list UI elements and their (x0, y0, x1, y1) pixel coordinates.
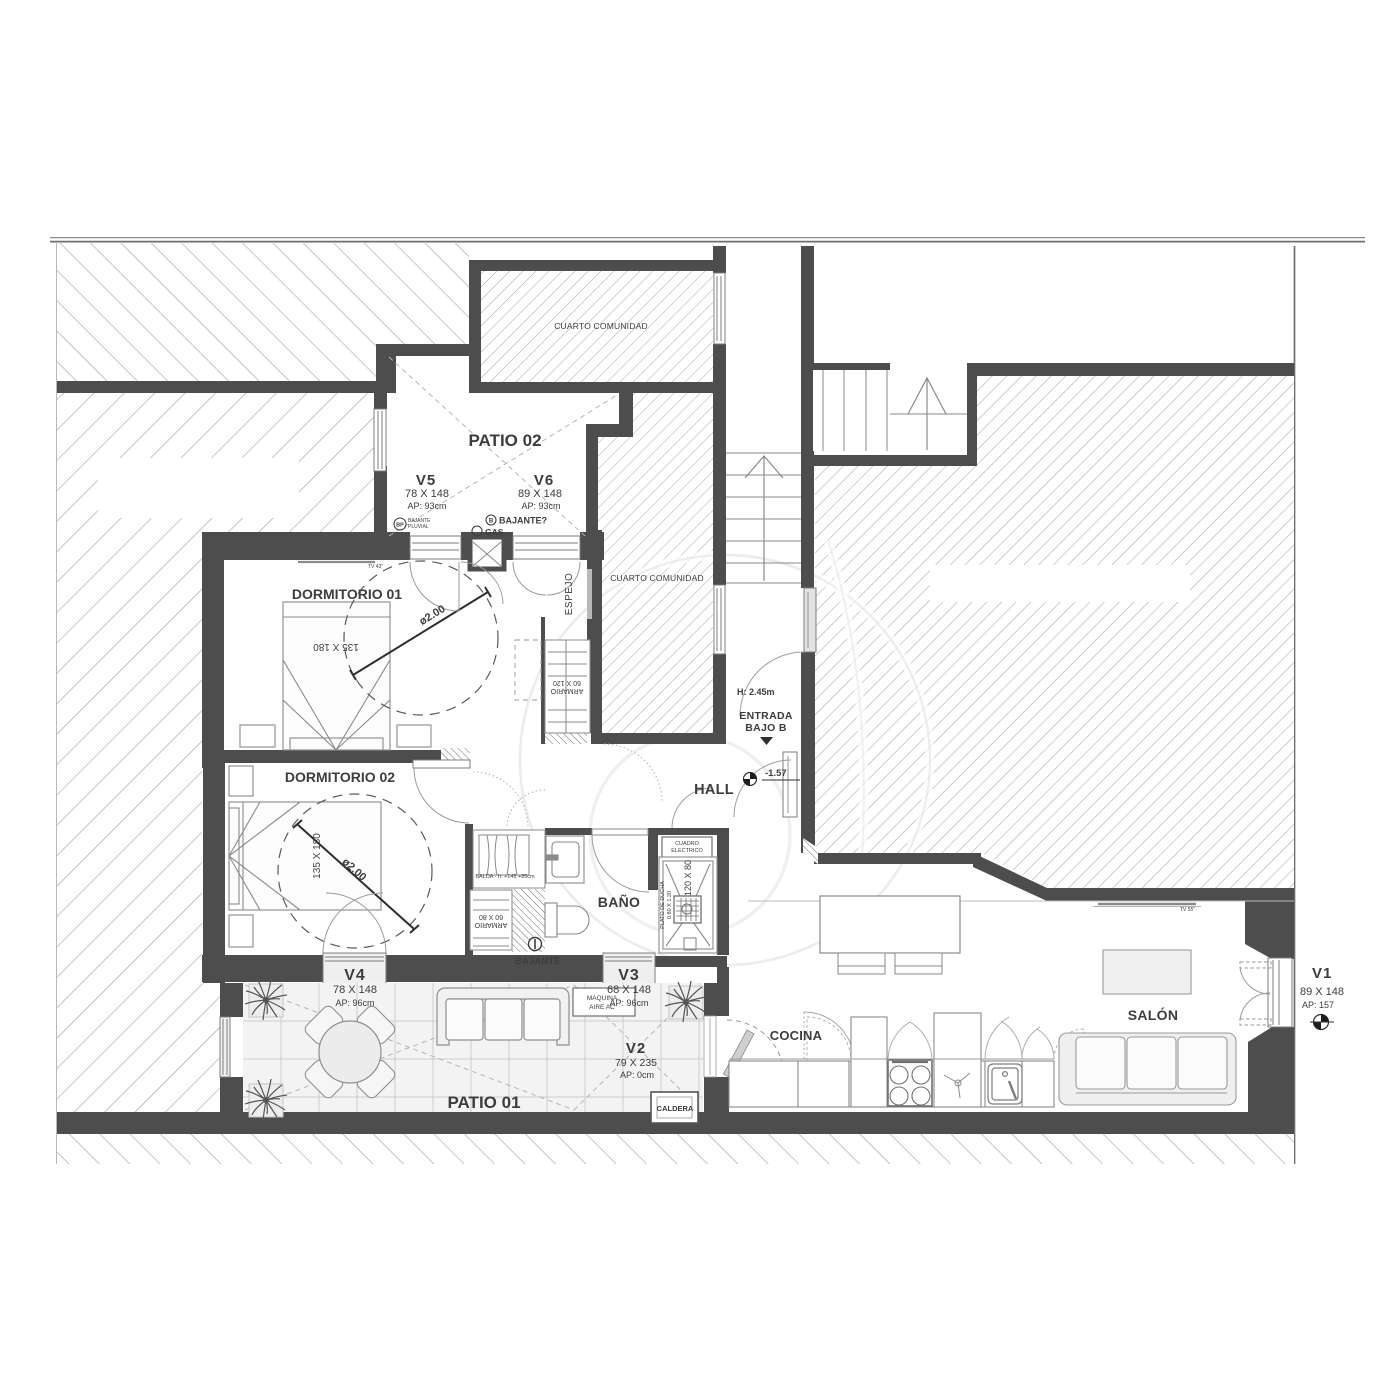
svg-text:PATIO 02: PATIO 02 (468, 431, 541, 450)
svg-text:DORMITORIO 02: DORMITORIO 02 (285, 769, 395, 785)
svg-text:PLATO DE DUCHA: PLATO DE DUCHA (660, 881, 666, 929)
svg-text:ESPEJO: ESPEJO (564, 573, 575, 615)
svg-text:BALDA - h: +145 +85cm: BALDA - h: +145 +85cm (475, 874, 535, 880)
svg-text:BP: BP (396, 523, 404, 529)
svg-text:89 X 148: 89 X 148 (1300, 986, 1344, 998)
svg-text:PATIO 01: PATIO 01 (447, 1093, 520, 1112)
svg-text:AP: 157: AP: 157 (1302, 1000, 1334, 1010)
svg-text:78 X 148: 78 X 148 (333, 984, 377, 996)
svg-text:-1.57: -1.57 (765, 768, 787, 779)
svg-text:135 X 180: 135 X 180 (312, 833, 323, 879)
svg-text:V2: V2 (626, 1040, 646, 1057)
svg-text:78 X 148: 78 X 148 (405, 488, 449, 500)
svg-text:BAÑO: BAÑO (598, 893, 640, 910)
svg-text:0.80 X 1.20: 0.80 X 1.20 (667, 891, 673, 919)
svg-text:B: B (489, 519, 494, 525)
svg-text:V4: V4 (344, 967, 366, 984)
svg-text:COCINA: COCINA (770, 1028, 823, 1043)
svg-text:AP: 93cm: AP: 93cm (407, 501, 446, 511)
svg-text:60 X 120: 60 X 120 (553, 679, 581, 686)
svg-text:DORMITORIO 01: DORMITORIO 01 (292, 586, 402, 602)
svg-text:GAS: GAS (485, 527, 504, 537)
svg-text:BAJANTE?: BAJANTE? (499, 516, 547, 526)
svg-text:120 X 80: 120 X 80 (683, 860, 693, 896)
svg-text:V6: V6 (534, 472, 554, 489)
svg-text:V3: V3 (618, 967, 640, 984)
svg-text:H: 2.45m: H: 2.45m (737, 687, 775, 697)
svg-text:BAJANTE: BAJANTE (515, 956, 561, 966)
svg-text:AP: 93cm: AP: 93cm (521, 501, 560, 511)
svg-text:CALDERA: CALDERA (657, 1104, 694, 1113)
svg-text:ARMARIO: ARMARIO (550, 687, 583, 694)
svg-text:ELECTRICO: ELECTRICO (671, 848, 703, 854)
svg-text:BAJO B: BAJO B (745, 722, 787, 734)
svg-text:CUARTO COMUNIDAD: CUARTO COMUNIDAD (554, 321, 648, 331)
svg-text:AIRE AC: AIRE AC (589, 1004, 615, 1011)
svg-text:TV 43": TV 43" (368, 564, 383, 570)
svg-text:89 X 148: 89 X 148 (518, 488, 562, 500)
svg-text:TV 55": TV 55" (1180, 907, 1195, 913)
svg-text:ARMARIO: ARMARIO (474, 921, 507, 928)
svg-text:MAQUINA: MAQUINA (587, 995, 618, 1002)
svg-text:AP: 96cm: AP: 96cm (335, 998, 374, 1008)
svg-text:ENTRADA: ENTRADA (739, 710, 793, 722)
svg-text:CUADRO: CUADRO (675, 841, 700, 847)
svg-text:60 X 80: 60 X 80 (479, 913, 503, 920)
svg-text:SALÓN: SALÓN (1128, 1006, 1179, 1023)
svg-text:HALL: HALL (694, 782, 734, 798)
svg-text:79 X 235: 79 X 235 (615, 1057, 657, 1069)
svg-text:V1: V1 (1312, 965, 1332, 982)
svg-text:V5: V5 (416, 472, 436, 489)
svg-text:PLUVIAL: PLUVIAL (408, 524, 429, 530)
svg-text:CUARTO COMUNIDAD: CUARTO COMUNIDAD (610, 573, 704, 583)
svg-text:135 X 180: 135 X 180 (313, 641, 359, 652)
svg-text:AP: 0cm: AP: 0cm (620, 1070, 654, 1080)
